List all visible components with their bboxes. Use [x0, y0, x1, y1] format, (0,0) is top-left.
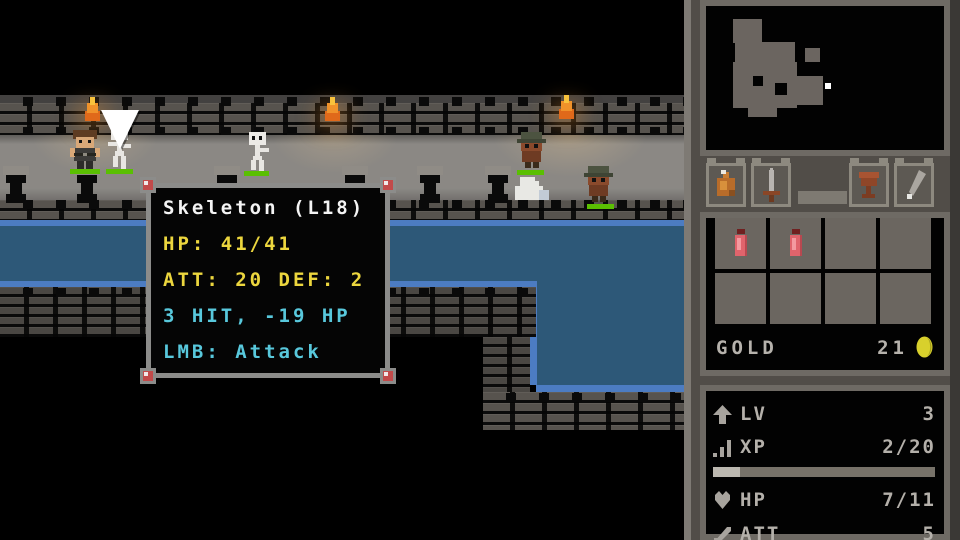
- sidebar-right-edge: [950, 0, 960, 540]
- minimap-room: [733, 62, 797, 108]
- up-arrow-icon: [712, 404, 733, 425]
- hotbar-slot-feather[interactable]: [894, 163, 934, 207]
- minimap-room: [805, 48, 820, 62]
- stat-row-level: LV 3: [712, 402, 936, 426]
- water-edge-bottom-right: [536, 385, 684, 392]
- attack-sword-icon: [712, 524, 733, 540]
- player-health-bar: [70, 169, 100, 174]
- sidebar: GOLD 21 LV 3 XP 2/20: [684, 0, 960, 540]
- inventory-slot[interactable]: [825, 218, 876, 269]
- tooltip-hit-line: 3 HIT, -19 HP: [163, 305, 351, 327]
- goblet-icon: [855, 170, 883, 200]
- tooltip-corner-gem: [140, 368, 156, 384]
- hotbar-slot-goblet[interactable]: [849, 163, 889, 207]
- minimap-wall: [775, 83, 787, 95]
- xp-progress-bar: [713, 467, 935, 477]
- minimap-panel: [700, 0, 950, 156]
- inventory-slot[interactable]: [715, 273, 766, 324]
- torch-flame: [558, 95, 575, 121]
- xp-value: 2/20: [882, 436, 936, 458]
- lower-wall-column: [483, 337, 530, 392]
- inventory-slot[interactable]: [880, 218, 931, 269]
- wall-crenellation-top: [0, 97, 684, 106]
- tooltip-lmb-line: LMB: Attack: [163, 341, 322, 363]
- level-value: 3: [923, 403, 936, 425]
- lower-wall-bottom-notches: [483, 393, 684, 402]
- minimap-room: [735, 42, 795, 63]
- sidebar-divider: [684, 0, 691, 540]
- skeleton-health-bar: [106, 169, 133, 174]
- att-value: 5: [923, 523, 936, 540]
- torch-flame: [84, 97, 101, 123]
- stat-row-xp: XP 2/20: [712, 435, 936, 459]
- minimap-wall: [753, 76, 763, 86]
- skeleton-health-bar: [244, 171, 269, 176]
- potion-icon: [713, 170, 739, 200]
- inventory-slot[interactable]: [825, 273, 876, 324]
- gold-coin-icon: [916, 336, 933, 358]
- hp-value: 7/11: [882, 489, 936, 511]
- goblin-sprite[interactable]: [517, 132, 546, 168]
- pillar: [485, 166, 511, 206]
- minimap-room: [748, 107, 777, 117]
- minimap-room: [733, 19, 762, 43]
- gold-value: 21: [804, 337, 908, 359]
- goblin-sprite[interactable]: [584, 166, 613, 202]
- ghost-sprite[interactable]: [515, 177, 549, 203]
- inventory-slot[interactable]: [770, 273, 821, 324]
- game-viewport[interactable]: Skeleton (L18) HP: 41/41 ATT: 20 DEF: 2 …: [0, 0, 684, 540]
- inventory-slot[interactable]: [770, 218, 821, 269]
- stat-row-att: ATT 5: [712, 522, 936, 540]
- red-potion-icon: [787, 229, 805, 259]
- tooltip-hp-line: HP: 41/41: [163, 233, 293, 255]
- skeleton-sprite[interactable]: [242, 132, 272, 174]
- goblin-health-bar: [587, 204, 614, 209]
- heart-icon: [712, 490, 733, 511]
- hotbar-slot-sword[interactable]: [751, 163, 791, 207]
- xp-bar-fill: [713, 467, 740, 477]
- pillar: [417, 166, 443, 206]
- bar-chart-icon: [712, 437, 733, 458]
- minimap-player-dot: [825, 83, 831, 89]
- hotbar-slot-potion[interactable]: [706, 163, 746, 207]
- game-screen: Skeleton (L18) HP: 41/41 ATT: 20 DEF: 2 …: [0, 0, 960, 540]
- hotbar-slot-empty[interactable]: [798, 191, 847, 204]
- player-sprite[interactable]: [70, 130, 100, 169]
- feather-icon: [900, 169, 928, 201]
- pillar: [3, 166, 29, 206]
- tooltip-title: Skeleton (L18): [163, 197, 365, 219]
- red-potion-icon: [732, 229, 750, 259]
- goblin-health-bar: [517, 170, 544, 175]
- tooltip-corner-gem: [140, 177, 156, 193]
- tooltip-attdef-line: ATT: 20 DEF: 2: [163, 269, 365, 291]
- mouse-cursor-icon: [101, 110, 139, 149]
- stat-row-hp: HP 7/11: [712, 488, 936, 512]
- tooltip-corner-gem: [380, 368, 396, 384]
- tooltip-corner-gem: [380, 177, 396, 193]
- monster-tooltip: Skeleton (L18) HP: 41/41 ATT: 20 DEF: 2 …: [146, 183, 390, 378]
- water-pool-deep: [536, 282, 684, 385]
- torch-flame: [324, 97, 341, 123]
- inventory-slot[interactable]: [715, 218, 766, 269]
- gold-label: GOLD: [716, 337, 778, 359]
- sword-icon: [757, 168, 785, 202]
- inventory-slot[interactable]: [880, 273, 931, 324]
- minimap-room: [795, 76, 823, 105]
